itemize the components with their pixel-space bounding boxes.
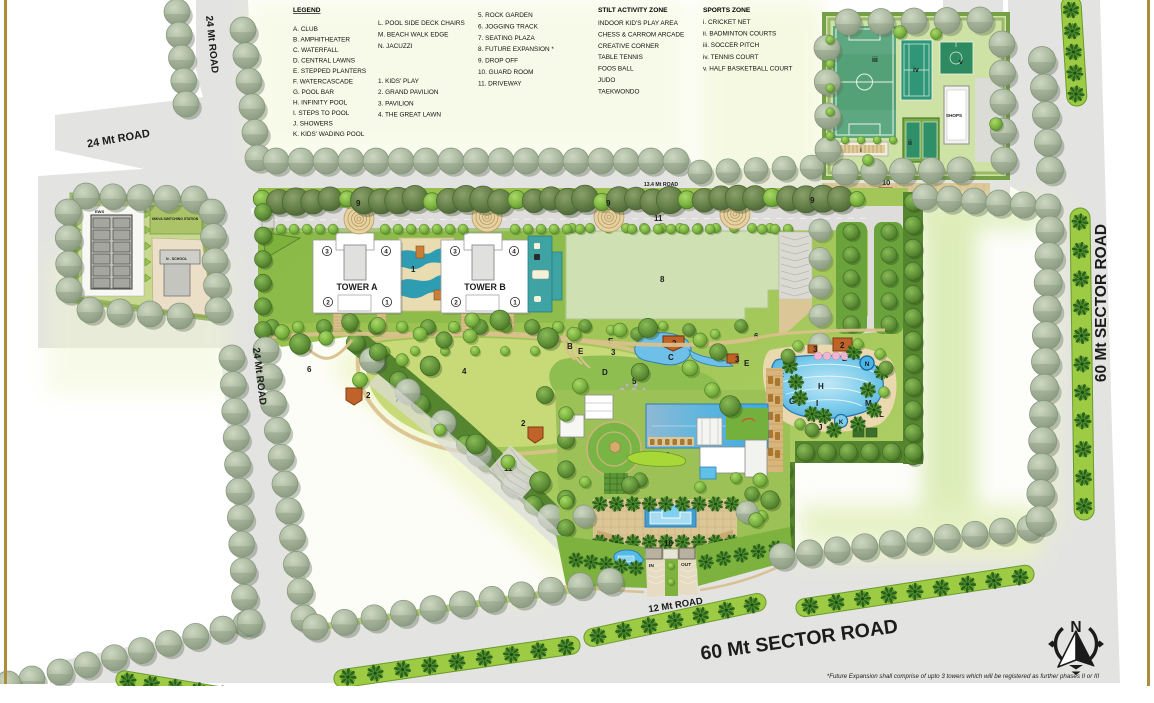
svg-text:3: 3 — [611, 348, 616, 357]
svg-text:B: B — [567, 342, 573, 351]
svg-text:D. CENTRAL LAWNS: D. CENTRAL LAWNS — [293, 58, 355, 65]
svg-text:v. HALF BASKETBALL COURT: v. HALF BASKETBALL COURT — [703, 65, 792, 72]
svg-text:INDOOR KID'S PLAY AREA: INDOOR KID'S PLAY AREA — [598, 20, 679, 27]
svg-text:1: 1 — [513, 299, 517, 306]
svg-text:H: H — [818, 382, 824, 391]
svg-text:3: 3 — [325, 248, 329, 255]
svg-text:2: 2 — [521, 419, 526, 428]
svg-text:2: 2 — [840, 341, 845, 350]
svg-text:11. DRIVEWAY: 11. DRIVEWAY — [478, 80, 522, 87]
svg-text:H. INFINITY POOL: H. INFINITY POOL — [293, 100, 348, 107]
svg-text:B. AMPHITHEATER: B. AMPHITHEATER — [293, 37, 350, 44]
svg-text:9: 9 — [810, 196, 815, 205]
svg-text:EWS: EWS — [95, 209, 104, 214]
svg-text:9: 9 — [356, 199, 361, 208]
svg-text:N: N — [1070, 619, 1081, 636]
svg-text:8. FUTURE EXPANSION *: 8. FUTURE EXPANSION * — [478, 46, 554, 53]
svg-text:OUT: OUT — [681, 562, 691, 568]
svg-text:4: 4 — [462, 367, 467, 376]
svg-text:iii: iii — [872, 57, 878, 64]
svg-text:M. BEACH WALK EDGE: M. BEACH WALK EDGE — [378, 32, 448, 39]
svg-text:C. WATERFALL: C. WATERFALL — [293, 47, 339, 54]
svg-text:TABLE TENNIS: TABLE TENNIS — [598, 54, 643, 61]
svg-text:i. CRICKET NET: i. CRICKET NET — [703, 19, 751, 26]
svg-text:i: i — [860, 147, 862, 154]
svg-text:6. JOGGING TRACK: 6. JOGGING TRACK — [478, 23, 539, 30]
svg-text:60 Mt SECTOR ROAD: 60 Mt SECTOR ROAD — [1093, 224, 1110, 382]
svg-text:K. KIDS' WADING POOL: K. KIDS' WADING POOL — [293, 131, 365, 138]
svg-text:iv: iv — [913, 67, 919, 74]
svg-text:LEGEND: LEGEND — [293, 7, 321, 14]
svg-text:*Future Expansion shall compri: *Future Expansion shall comprise of upto… — [827, 673, 1100, 680]
svg-text:N: N — [865, 361, 870, 368]
svg-text:4: 4 — [384, 248, 388, 255]
svg-text:2: 2 — [366, 391, 371, 400]
svg-text:9: 9 — [606, 199, 611, 208]
svg-text:J. SHOWERS: J. SHOWERS — [293, 121, 333, 128]
svg-text:N. JACUZZI: N. JACUZZI — [378, 43, 413, 50]
svg-text:FOOS BALL: FOOS BALL — [598, 66, 634, 73]
svg-text:STILT ACTIVITY ZONE: STILT ACTIVITY ZONE — [598, 7, 668, 14]
svg-text:CREATIVE CORNER: CREATIVE CORNER — [598, 43, 659, 50]
svg-text:IN: IN — [649, 563, 654, 569]
svg-text:2: 2 — [326, 299, 330, 306]
svg-text:JUDO: JUDO — [598, 77, 615, 84]
svg-text:1. KIDS' PLAY: 1. KIDS' PLAY — [378, 78, 420, 85]
svg-text:13.4 Mt ROAD: 13.4 Mt ROAD — [644, 182, 679, 188]
svg-text:G. POOL BAR: G. POOL BAR — [293, 89, 334, 96]
svg-text:I: I — [816, 399, 818, 408]
svg-text:TOWER B: TOWER B — [464, 282, 505, 292]
svg-text:4: 4 — [512, 248, 516, 255]
svg-text:9. DROP OFF: 9. DROP OFF — [478, 58, 518, 65]
svg-text:E: E — [578, 347, 584, 356]
svg-text:8: 8 — [660, 275, 665, 284]
svg-text:2. GRAND PAVILION: 2. GRAND PAVILION — [378, 89, 439, 96]
svg-text:1: 1 — [411, 265, 416, 274]
svg-text:TOWER A: TOWER A — [336, 282, 378, 292]
svg-text:C: C — [668, 353, 674, 362]
svg-text:3: 3 — [453, 248, 457, 255]
svg-text:7. SEATING PLAZA: 7. SEATING PLAZA — [478, 35, 535, 42]
svg-text:E: E — [744, 359, 750, 368]
svg-text:6: 6 — [307, 365, 312, 374]
svg-text:2: 2 — [454, 299, 458, 306]
svg-text:1: 1 — [385, 299, 389, 306]
svg-text:4. THE GREAT LAWN: 4. THE GREAT LAWN — [378, 112, 441, 119]
svg-text:10: 10 — [664, 539, 673, 548]
svg-text:v: v — [959, 59, 963, 66]
svg-text:SHOPS: SHOPS — [946, 113, 962, 118]
svg-text:10. GUARD ROOM: 10. GUARD ROOM — [478, 69, 533, 76]
svg-text:3: 3 — [735, 355, 740, 364]
svg-text:5. ROCK GARDEN: 5. ROCK GARDEN — [478, 12, 533, 19]
svg-text:iv. TENNIS COURT: iv. TENNIS COURT — [703, 54, 758, 61]
svg-text:D: D — [602, 368, 608, 377]
svg-text:I. STEPS TO POOL: I. STEPS TO POOL — [293, 110, 350, 117]
svg-text:SPORTS ZONE: SPORTS ZONE — [703, 7, 751, 14]
svg-text:ii: ii — [908, 140, 912, 147]
svg-text:A. CLUB: A. CLUB — [293, 26, 318, 33]
svg-text:F. WATERCASCADE: F. WATERCASCADE — [293, 79, 353, 86]
svg-text:3. PAVILION: 3. PAVILION — [378, 100, 414, 107]
svg-text:L. POOL SIDE DECK CHAIRS: L. POOL SIDE DECK CHAIRS — [378, 20, 465, 27]
svg-text:TAEKWONDO: TAEKWONDO — [598, 88, 639, 95]
svg-text:ii. BADMINTON COURTS: ii. BADMINTON COURTS — [703, 31, 776, 38]
svg-text:N - SCHOOL: N - SCHOOL — [166, 257, 188, 261]
svg-text:iii. SOCCER PITCH: iii. SOCCER PITCH — [703, 42, 759, 49]
svg-text:CHESS & CARROM ARCADE: CHESS & CARROM ARCADE — [598, 31, 684, 38]
svg-text:E. STEPPED PLANTERS: E. STEPPED PLANTERS — [293, 68, 366, 75]
svg-text:66KVA SWITCHING STATION: 66KVA SWITCHING STATION — [152, 217, 199, 221]
